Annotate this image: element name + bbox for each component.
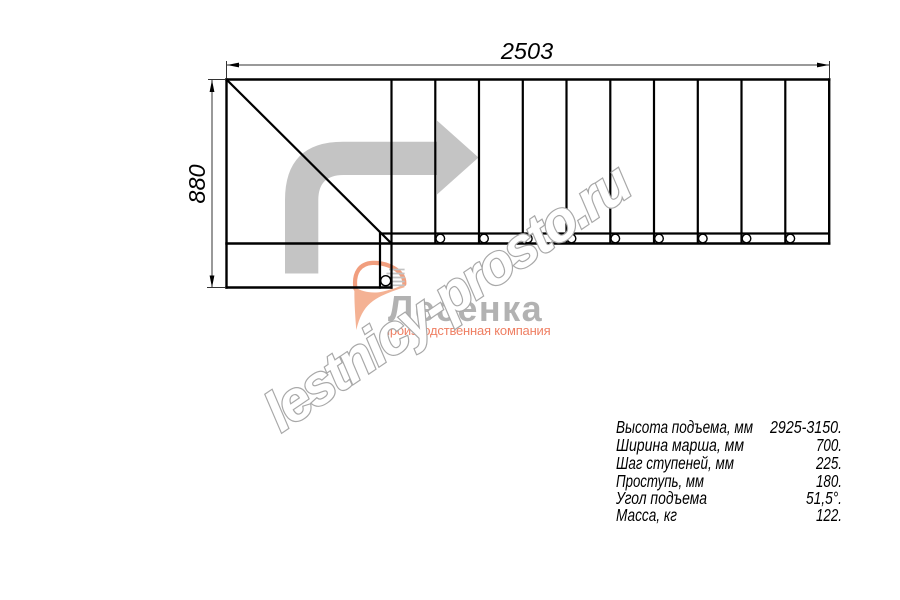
svg-text:2503: 2503 xyxy=(500,38,553,64)
svg-text:225.: 225. xyxy=(815,453,842,473)
svg-text:122.: 122. xyxy=(816,505,842,525)
svg-text:Ширина марша, мм: Ширина марша, мм xyxy=(616,435,744,455)
svg-text:700.: 700. xyxy=(816,435,842,455)
svg-text:Шаг ступеней, мм: Шаг ступеней, мм xyxy=(616,453,734,473)
svg-text:Масса, кг: Масса, кг xyxy=(616,505,677,525)
svg-text:2925-3150.: 2925-3150. xyxy=(769,417,842,437)
svg-text:880: 880 xyxy=(184,164,210,203)
svg-text:Высота подъема, мм: Высота подъема, мм xyxy=(616,417,753,437)
